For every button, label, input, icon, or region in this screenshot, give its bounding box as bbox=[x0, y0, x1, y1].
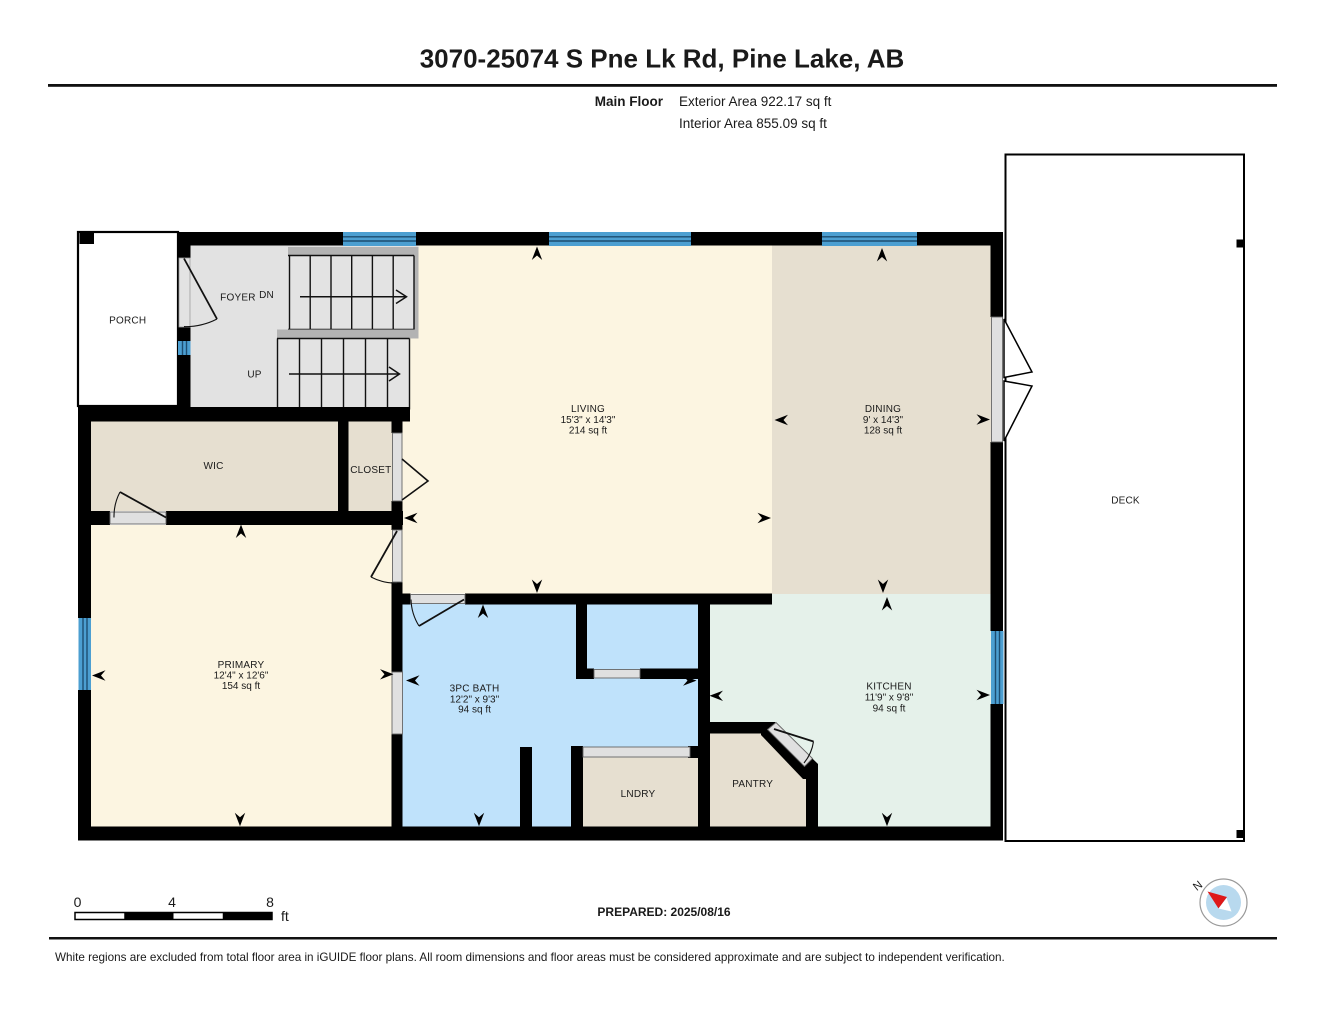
svg-text:15'3" x 14'3": 15'3" x 14'3" bbox=[561, 415, 616, 426]
svg-text:Exterior Area 922.17 sq ft: Exterior Area 922.17 sq ft bbox=[679, 94, 832, 109]
svg-text:4: 4 bbox=[168, 894, 176, 910]
svg-text:PREPARED: 2025/08/16: PREPARED: 2025/08/16 bbox=[597, 905, 731, 919]
svg-text:White regions are excluded fro: White regions are excluded from total fl… bbox=[55, 951, 1005, 964]
svg-text:Main Floor: Main Floor bbox=[595, 94, 664, 109]
svg-text:154 sq ft: 154 sq ft bbox=[222, 681, 261, 692]
svg-text:94 sq ft: 94 sq ft bbox=[458, 704, 491, 715]
svg-text:128 sq ft: 128 sq ft bbox=[864, 426, 903, 437]
svg-text:FOYER: FOYER bbox=[220, 293, 255, 304]
svg-text:11'9" x 9'8": 11'9" x 9'8" bbox=[865, 692, 914, 703]
svg-text:WIC: WIC bbox=[203, 461, 223, 472]
svg-text:12'4" x 12'6": 12'4" x 12'6" bbox=[214, 670, 269, 681]
svg-text:ft: ft bbox=[281, 908, 289, 924]
svg-text:PORCH: PORCH bbox=[109, 316, 146, 327]
svg-text:8: 8 bbox=[266, 894, 274, 910]
svg-text:DN: DN bbox=[259, 290, 274, 301]
svg-text:LNDRY: LNDRY bbox=[621, 789, 656, 800]
svg-text:94 sq ft: 94 sq ft bbox=[873, 703, 906, 714]
svg-text:Interior Area 855.09 sq ft: Interior Area 855.09 sq ft bbox=[679, 116, 827, 131]
svg-text:LIVING: LIVING bbox=[571, 404, 605, 415]
svg-text:214 sq ft: 214 sq ft bbox=[569, 426, 608, 437]
svg-text:DINING: DINING bbox=[865, 404, 901, 415]
svg-text:DECK: DECK bbox=[1111, 496, 1140, 507]
svg-text:UP: UP bbox=[247, 370, 261, 381]
svg-text:3070-25074 S Pne Lk Rd, Pine L: 3070-25074 S Pne Lk Rd, Pine Lake, AB bbox=[420, 44, 905, 74]
svg-text:PRIMARY: PRIMARY bbox=[218, 660, 265, 671]
svg-text:9' x 14'3": 9' x 14'3" bbox=[863, 415, 904, 426]
svg-text:KITCHEN: KITCHEN bbox=[866, 681, 911, 692]
svg-text:CLOSET: CLOSET bbox=[350, 465, 391, 476]
svg-text:3PC BATH: 3PC BATH bbox=[450, 684, 500, 695]
svg-text:PANTRY: PANTRY bbox=[732, 779, 773, 790]
svg-text:0: 0 bbox=[74, 894, 82, 910]
